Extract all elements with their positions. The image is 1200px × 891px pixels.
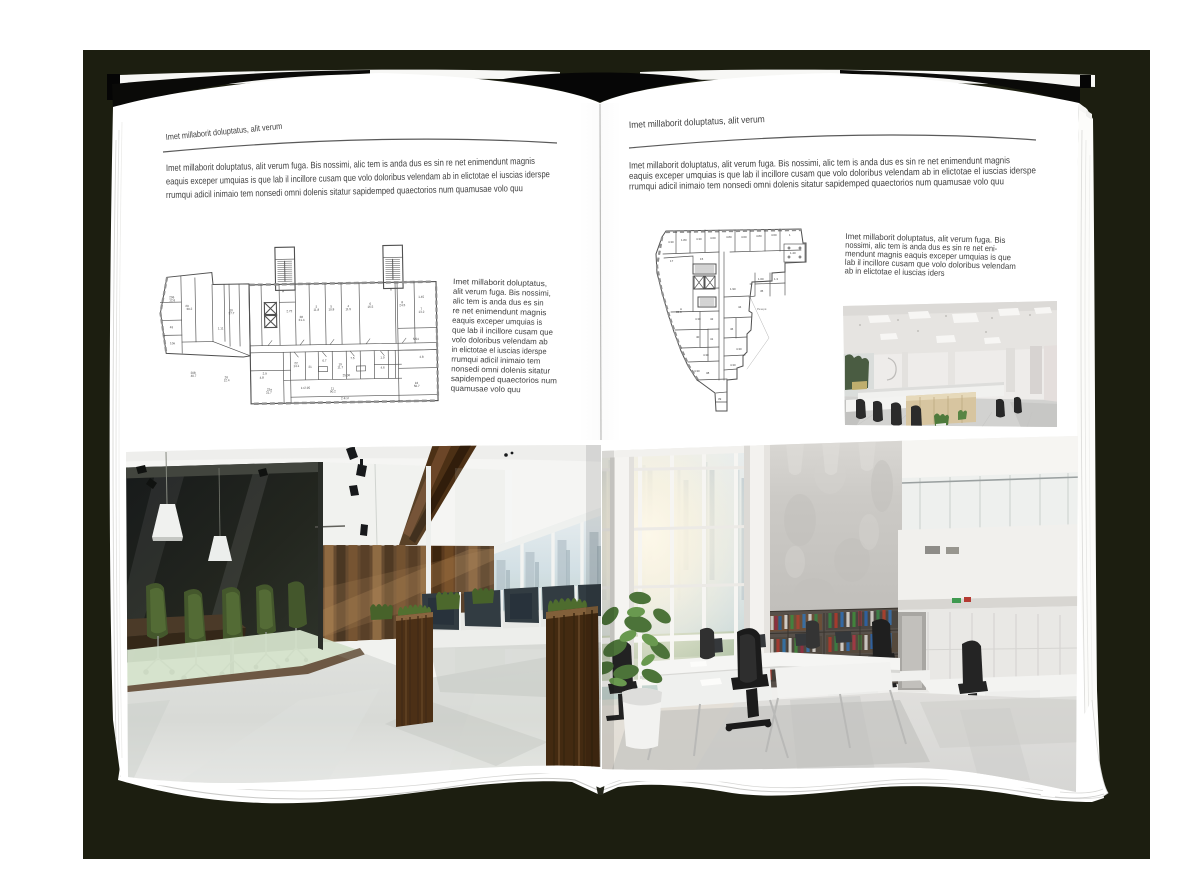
svg-text:4.30: 4.30 [668, 240, 674, 244]
svg-text:4.8: 4.8 [419, 355, 424, 359]
svg-text:11.7: 11.7 [337, 365, 343, 369]
svg-text:31.7: 31.7 [266, 390, 272, 394]
svg-text:11.8: 11.8 [313, 308, 319, 312]
svg-text:15: 15 [700, 257, 704, 261]
svg-text:4.6: 4.6 [380, 366, 385, 370]
svg-text:17: 17 [670, 259, 674, 263]
svg-text:4.80: 4.80 [726, 235, 732, 239]
svg-text:2-й эт: 2-й эт [341, 396, 350, 400]
svg-text:4.60: 4.60 [710, 236, 716, 240]
svg-text:4.8: 4.8 [260, 376, 265, 380]
svg-text:40: 40 [696, 335, 700, 339]
svg-text:4.30: 4.30 [695, 317, 701, 321]
svg-text:16.5: 16.5 [367, 305, 373, 309]
svg-text:11.5: 11.5 [345, 307, 351, 311]
svg-text:10.8: 10.8 [328, 307, 334, 311]
svg-text:4.60: 4.60 [741, 235, 747, 239]
svg-text:46: 46 [730, 327, 734, 331]
svg-text:85.3: 85.3 [676, 310, 682, 314]
svg-text:12.4: 12.4 [224, 378, 230, 382]
svg-text:1.9: 1.9 [380, 356, 385, 360]
svg-text:38: 38 [706, 371, 710, 375]
svg-text:30.2: 30.2 [186, 307, 192, 311]
svg-text:4.60: 4.60 [771, 233, 777, 237]
svg-text:Резерв: Резерв [757, 307, 767, 311]
svg-text:Б: Б [390, 287, 392, 291]
svg-text:1.11: 1.11 [218, 326, 224, 330]
svg-text:6.7: 6.7 [322, 359, 327, 363]
svg-text:2.72: 2.72 [286, 309, 292, 313]
svg-text:39: 39 [718, 397, 722, 401]
svg-text:90.2: 90.2 [330, 389, 336, 393]
svg-text:1.90: 1.90 [730, 287, 736, 291]
svg-text:44: 44 [738, 305, 742, 309]
svg-text:42: 42 [710, 317, 714, 321]
svg-text:1.3: 1.3 [774, 277, 778, 281]
svg-text:45: 45 [760, 289, 764, 293]
svg-text:21: 21 [308, 365, 312, 369]
svg-text:1.60: 1.60 [758, 277, 764, 281]
svg-text:40.7: 40.7 [191, 374, 197, 378]
svg-text:4.30: 4.30 [696, 237, 702, 241]
svg-text:4.30: 4.30 [736, 347, 742, 351]
svg-text:quamusae volo quu: quamusae volo quu [451, 384, 521, 395]
svg-text:13.2: 13.2 [418, 310, 424, 314]
svg-text:50.7: 50.7 [414, 384, 420, 388]
svg-text:А: А [282, 289, 284, 293]
svg-text:49: 49 [170, 325, 174, 329]
svg-text:4.30: 4.30 [730, 363, 736, 367]
svg-text:4.30: 4.30 [703, 353, 709, 357]
svg-text:10a: 10a [170, 341, 175, 345]
svg-text:41: 41 [710, 337, 714, 341]
svg-text:1.45: 1.45 [418, 295, 424, 299]
svg-text:25.00: 25.00 [343, 373, 351, 377]
svg-text:7.5: 7.5 [350, 356, 355, 360]
svg-text:5.54: 5.54 [413, 337, 419, 341]
svg-text:1.40: 1.40 [790, 251, 796, 255]
svg-text:4.80: 4.80 [756, 234, 762, 238]
svg-text:1+2.95: 1+2.95 [301, 386, 311, 390]
svg-text:24.5: 24.5 [399, 303, 405, 307]
svg-text:21.4: 21.4 [299, 318, 305, 322]
svg-text:37.7: 37.7 [228, 311, 234, 315]
svg-text:12.6: 12.6 [169, 298, 175, 302]
svg-text:1.80: 1.80 [681, 238, 687, 242]
svg-text:4.30: 4.30 [694, 369, 700, 373]
svg-text:14.1: 14.1 [293, 364, 299, 368]
